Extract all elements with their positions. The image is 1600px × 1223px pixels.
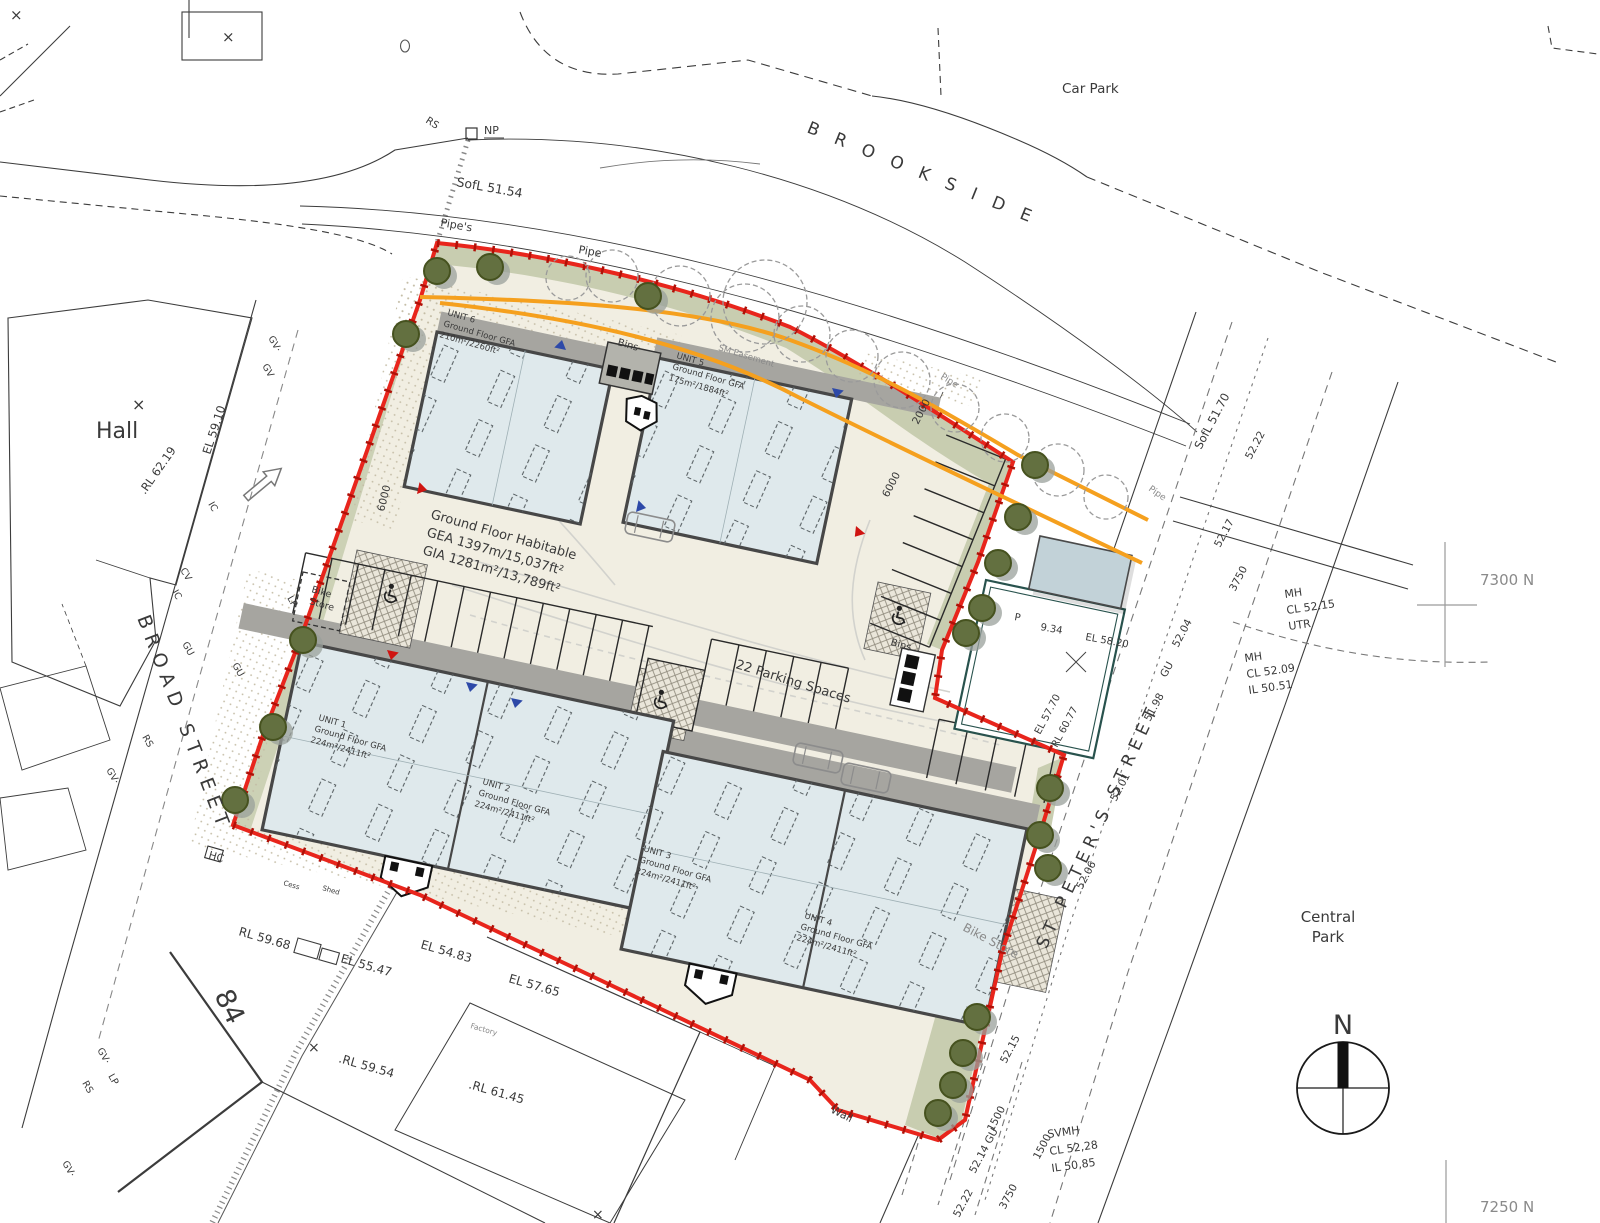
svg-text:GU: GU bbox=[1158, 660, 1176, 680]
x-mark-bottom: × bbox=[592, 1207, 604, 1223]
place-label-84: 84 bbox=[208, 984, 251, 1028]
svg-text:SofL 51.70: SofL 51.70 bbox=[1191, 391, 1232, 452]
grid-label-7300: 7300 N bbox=[1480, 571, 1534, 589]
one-way-arrow-icon bbox=[240, 462, 287, 505]
svg-text:EL 57.65: EL 57.65 bbox=[507, 971, 561, 999]
svg-text:EL 55.47: EL 55.47 bbox=[339, 951, 393, 979]
svg-text:CL 52,28: CL 52,28 bbox=[1049, 1138, 1099, 1158]
compass-north-label: N bbox=[1333, 1010, 1353, 1041]
svg-text:CL 52.15: CL 52.15 bbox=[1286, 597, 1336, 617]
svg-text:.RL 62.19: .RL 62.19 bbox=[136, 444, 179, 497]
svg-text:52.22: 52.22 bbox=[1243, 429, 1268, 461]
svg-text:IL 50,85: IL 50,85 bbox=[1051, 1156, 1097, 1175]
grid-label-7250: 7250 N bbox=[1480, 1198, 1534, 1216]
svg-text:UTR: UTR bbox=[1288, 617, 1312, 633]
rs-label-1: RS bbox=[423, 115, 440, 131]
place-label-car-park: Car Park bbox=[1062, 81, 1119, 97]
place-label-cess: Cess bbox=[282, 879, 300, 891]
grid-cross-7300 bbox=[1417, 542, 1477, 667]
svg-text:52.14 GU: 52.14 GU bbox=[967, 1126, 1001, 1175]
x-mark-topleft-1: × bbox=[10, 6, 23, 24]
svg-text:EL 54.83: EL 54.83 bbox=[419, 937, 473, 965]
hall-x-mark: × bbox=[132, 395, 145, 414]
pipe-label-3: Pipe bbox=[1146, 484, 1168, 503]
pipe-label-1: Pipe bbox=[577, 243, 602, 260]
site-plan-drawing: N B R O O K S I D E BROAD STREET ST PETE… bbox=[0, 0, 1600, 1223]
svg-text:EL 59.10: EL 59.10 bbox=[200, 404, 229, 456]
svg-text:MH: MH bbox=[1284, 586, 1303, 601]
svg-text:.RL 59.54: .RL 59.54 bbox=[337, 1051, 396, 1080]
svg-text:RL 59.68: RL 59.68 bbox=[237, 924, 292, 952]
svg-text:RS: RS bbox=[139, 733, 155, 749]
svg-text:52.04: 52.04 bbox=[1170, 617, 1195, 649]
north-compass: N bbox=[1297, 1010, 1389, 1134]
svg-text:GV·: GV· bbox=[59, 1159, 77, 1179]
svg-text:LP: LP bbox=[105, 1072, 120, 1087]
svg-text:3750: 3750 bbox=[997, 1182, 1020, 1211]
svg-text:IL 50.51: IL 50.51 bbox=[1248, 678, 1294, 697]
place-label-hall: Hall bbox=[96, 419, 138, 444]
place-label-shed: Shed bbox=[321, 884, 340, 897]
svg-text:GV: GV bbox=[259, 362, 276, 380]
np-label: NP bbox=[484, 124, 499, 137]
x-mark-topleft-2: × bbox=[222, 28, 235, 46]
svg-text:52.22: 52.22 bbox=[951, 1187, 976, 1219]
place-label-central-1: Central bbox=[1301, 908, 1356, 926]
place-label-factory: Factory bbox=[469, 1021, 498, 1037]
o-marker bbox=[401, 40, 410, 52]
svg-text:GV·: GV· bbox=[265, 334, 283, 354]
np-post bbox=[466, 128, 477, 139]
svg-text:IC: IC bbox=[205, 500, 219, 514]
place-label-central-2: Park bbox=[1312, 928, 1345, 946]
svg-text:RS: RS bbox=[79, 1079, 95, 1095]
svg-text:MH: MH bbox=[1244, 650, 1263, 665]
svg-text:GV·: GV· bbox=[94, 1046, 112, 1066]
x-mark-rl5954: × bbox=[308, 1040, 320, 1056]
svg-text:.RL 61.45: .RL 61.45 bbox=[467, 1077, 526, 1106]
svg-text:52.15: 52.15 bbox=[998, 1033, 1023, 1065]
svg-text:GU: GU bbox=[179, 640, 196, 658]
svg-text:3750: 3750 bbox=[1227, 564, 1250, 593]
svg-text:SofL 51.54: SofL 51.54 bbox=[455, 174, 523, 200]
